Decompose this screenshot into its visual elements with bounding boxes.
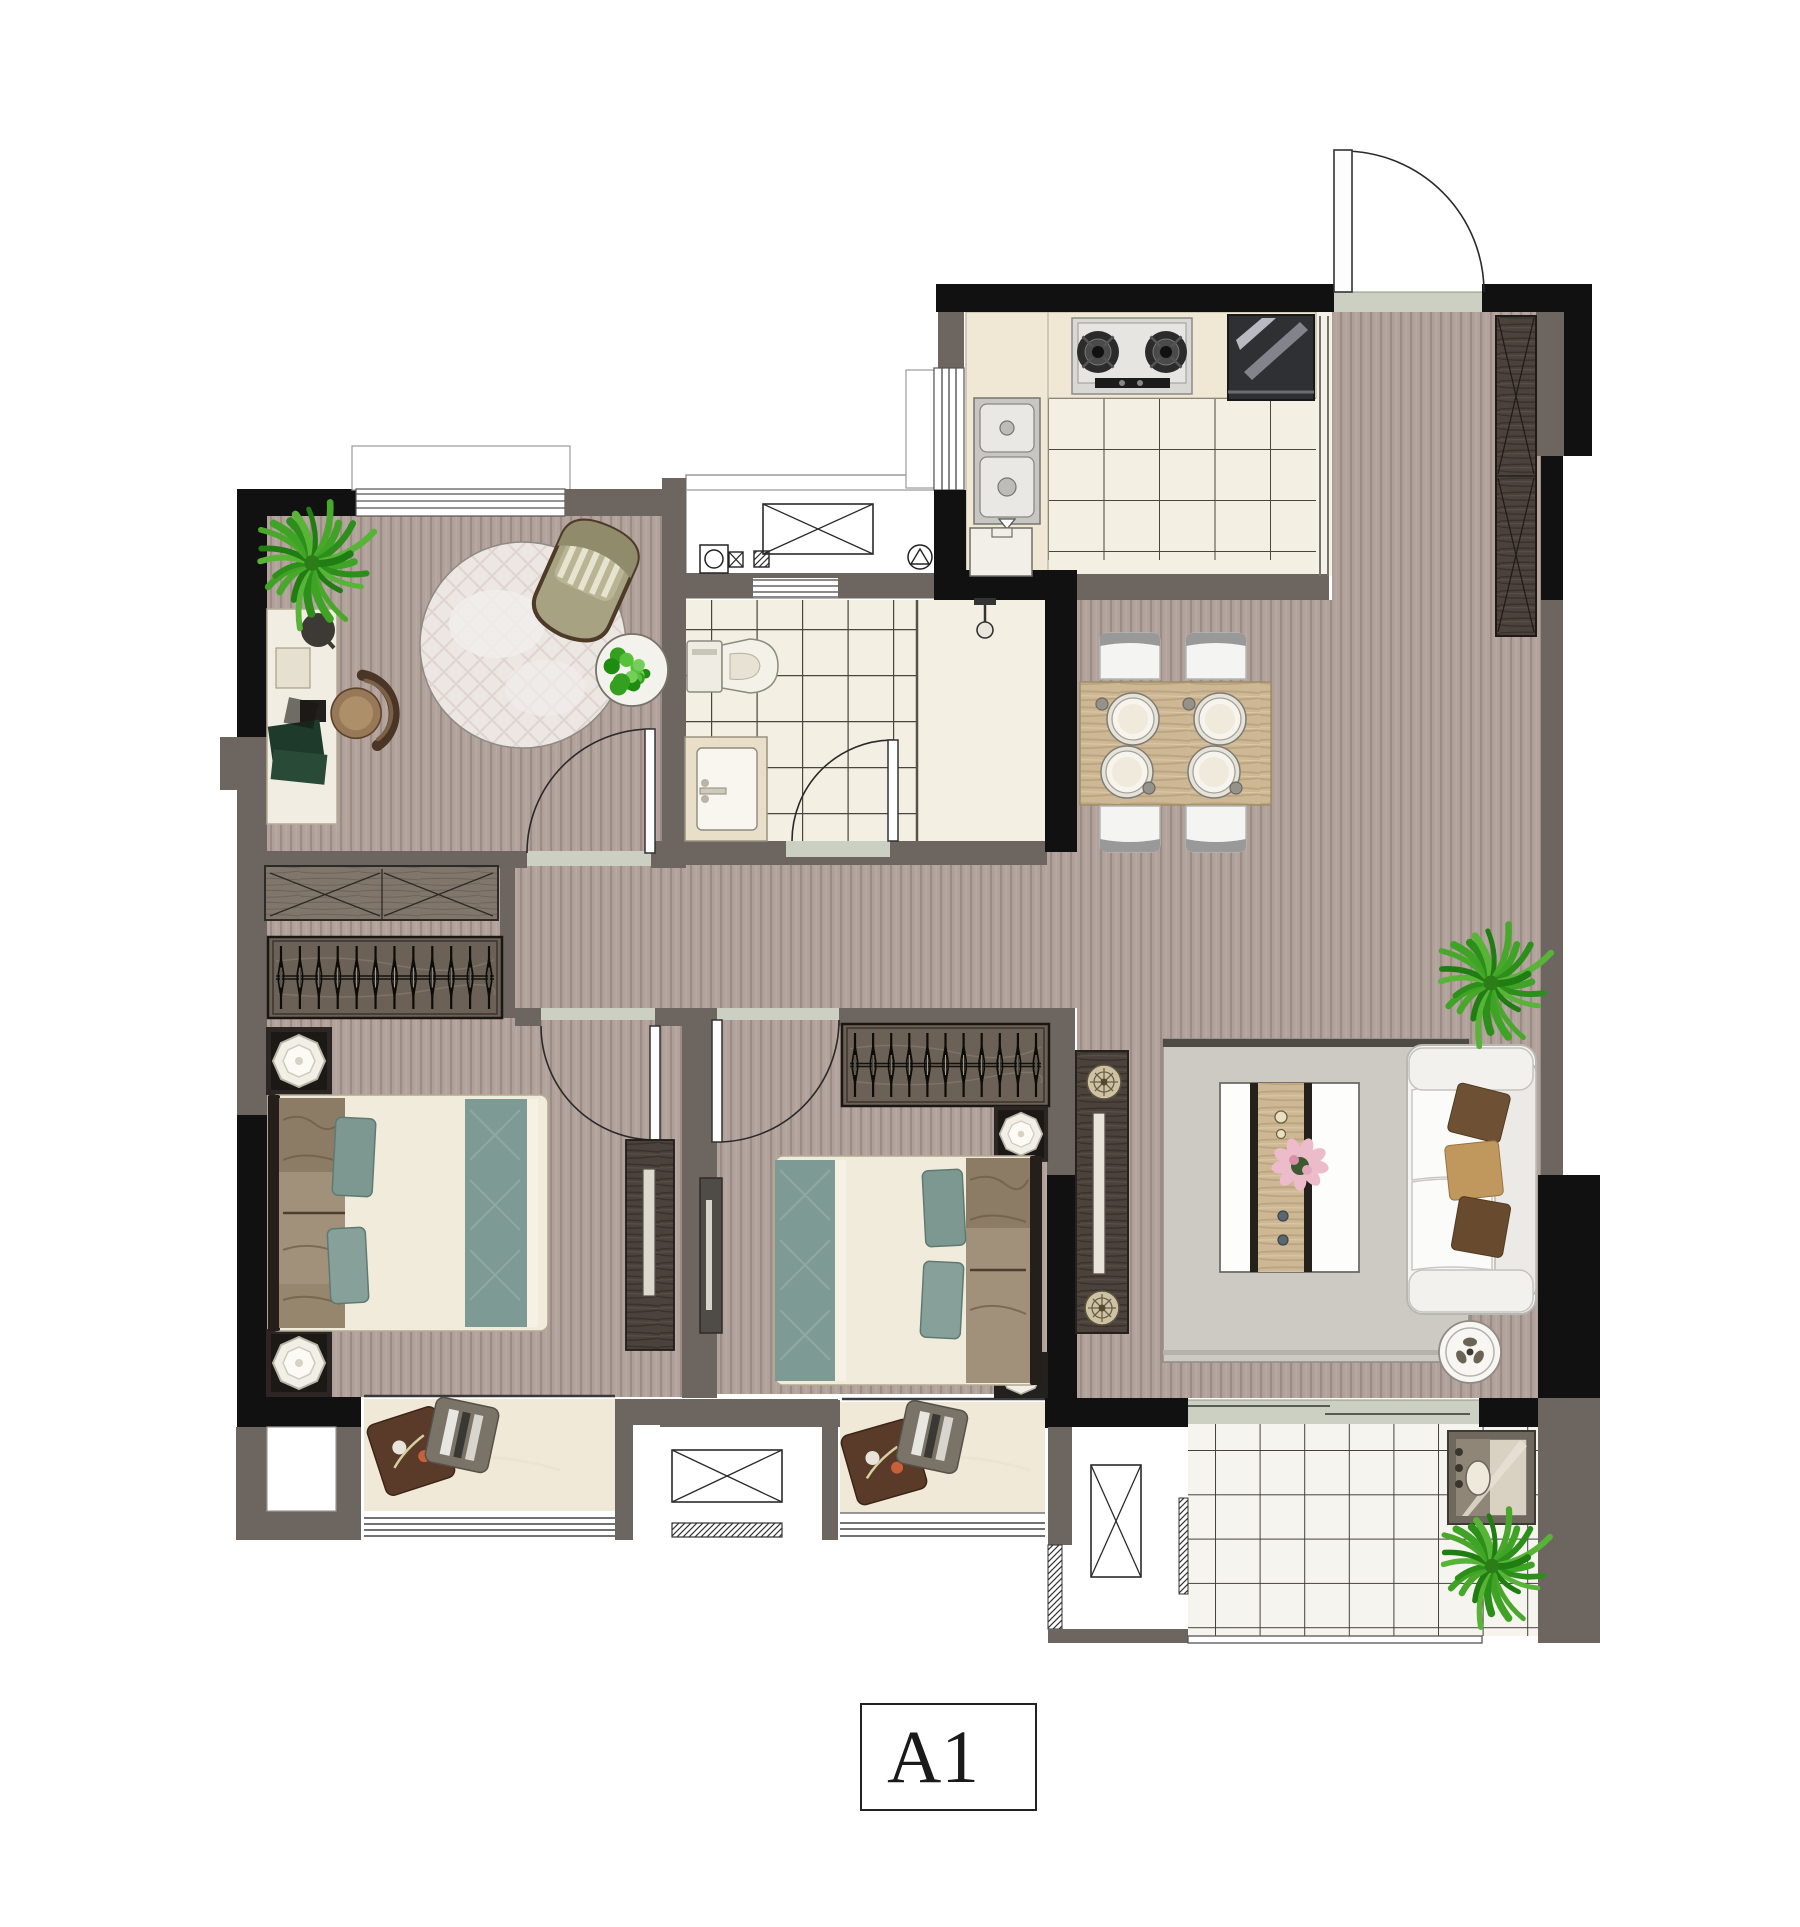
svg-text:A1: A1	[887, 1716, 979, 1799]
